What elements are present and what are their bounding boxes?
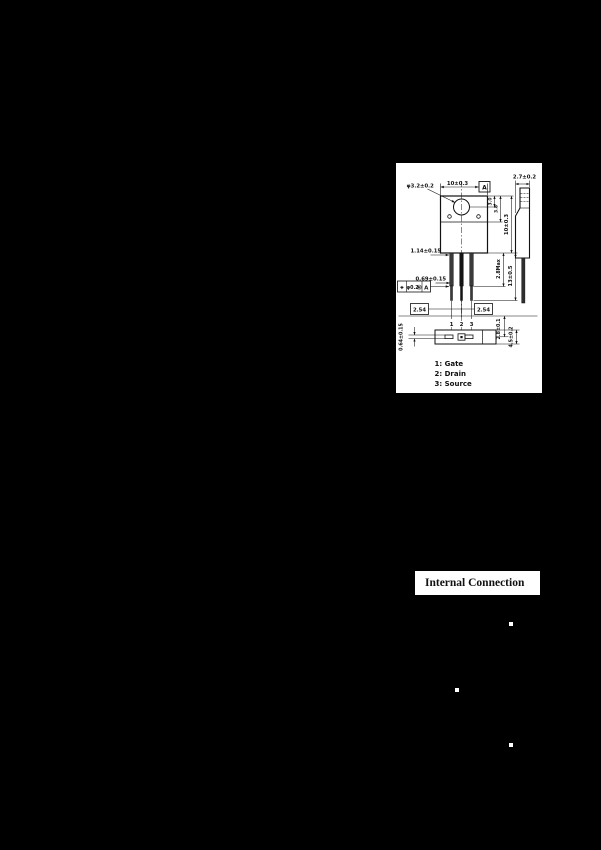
- package-body: [441, 196, 488, 253]
- legend-source: 3: Source: [435, 380, 473, 388]
- dim-pitch-left: 2.54: [413, 308, 426, 314]
- dim-pitch-right: 2.54: [477, 308, 490, 314]
- dim-lead-thickness: 0.64±0.15: [399, 323, 405, 351]
- pad-pin3: [465, 335, 473, 339]
- dim-hole-diameter: φ3.2±0.2: [407, 184, 435, 190]
- schematic-terminal-dot-top: [509, 622, 513, 626]
- datasheet-page: φ3.2±0.2 10±0.3 A 3.0 3.8 10±0.3 2.8Max: [0, 0, 601, 850]
- dim-pad-offset: 2.8±0.1: [496, 318, 502, 339]
- bottom-outline: [435, 330, 496, 344]
- dim-tab-to-top: 3.8: [494, 205, 500, 213]
- pin-legend: 1: Gate 2: Drain 3: Source: [435, 360, 473, 388]
- dim-lead-width-tip: 0.69±0.15: [416, 277, 447, 283]
- dim-body-depth: 4.5±0.2: [509, 326, 515, 347]
- schematic-terminal-dot-bottom: [509, 743, 513, 747]
- dim-body-width: 10±0.3: [447, 181, 469, 187]
- dim-lead-width-upper: 1.14±0.15: [411, 249, 442, 255]
- legend-gate: 1: Gate: [435, 360, 464, 368]
- package-outline-panel: φ3.2±0.2 10±0.3 A 3.0 3.8 10±0.3 2.8Max: [396, 163, 542, 393]
- pin3-number: 3: [470, 322, 474, 328]
- position-datum-label: A: [424, 286, 429, 292]
- package-outline-drawing: φ3.2±0.2 10±0.3 A 3.0 3.8 10±0.3 2.8Max: [396, 163, 542, 393]
- side-view: [516, 181, 530, 304]
- side-outline: [516, 188, 530, 258]
- dim-shoulder-max: 2.8Max: [496, 258, 502, 279]
- pad-pin1: [445, 335, 453, 339]
- pin2-number: 2: [460, 322, 464, 328]
- internal-connection-title: Internal Connection: [415, 577, 524, 589]
- internal-connection-panel: Internal Connection: [415, 571, 540, 595]
- dim-body-height: 10±0.3: [504, 214, 510, 236]
- datum-a-label: A: [482, 185, 487, 192]
- pin1-number: 1: [450, 322, 454, 328]
- position-symbol-icon: ⌖: [399, 285, 404, 292]
- material-modifier-icon: Ⓜ: [417, 284, 422, 291]
- side-lead: [522, 258, 525, 303]
- front-view: [441, 181, 488, 321]
- leads: [450, 253, 474, 301]
- legend-drain: 2: Drain: [435, 370, 466, 378]
- dim-lead-length: 13±0.5: [508, 265, 514, 287]
- bottom-view: [409, 316, 520, 347]
- mold-mark-left: [448, 215, 452, 219]
- dim-hole-to-top: 3.0: [488, 198, 494, 206]
- schematic-terminal-dot-left: [455, 688, 459, 692]
- mold-mark-right: [477, 215, 481, 219]
- dim-side-thickness: 2.7±0.2: [513, 175, 537, 181]
